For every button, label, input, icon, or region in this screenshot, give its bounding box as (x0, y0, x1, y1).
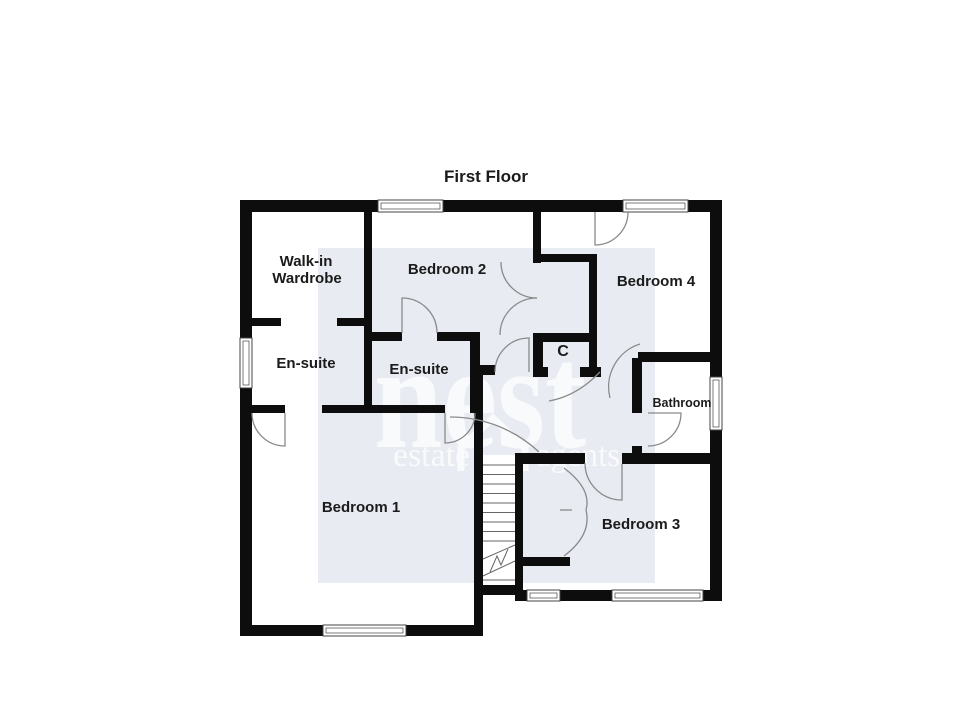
wall-wardrobe-bedroom2 (364, 212, 372, 413)
wall-bedroom3-closet-bottom (523, 557, 570, 566)
room-label-ensuite-left: En-suite (276, 355, 335, 372)
wall-cupboard-sill-east (580, 367, 601, 377)
floor-plan-page: nest estate agents (0, 0, 980, 712)
floor-plan-canvas: nest estate agents (0, 0, 980, 712)
room-label-ensuite-middle: En-suite (389, 361, 448, 378)
wall-exterior-left (240, 200, 252, 636)
room-label-cupboard: C (557, 343, 569, 360)
wall-ensuite-bottom-a (252, 405, 285, 413)
wall-ensuite-bottom-b (322, 405, 445, 413)
room-label-walk-in-wardrobe-line1: Walk-in (280, 253, 333, 270)
window (623, 200, 688, 212)
staircase (483, 455, 515, 587)
wall-cupboard-sill-west (533, 367, 548, 377)
wall-cupboard-east (589, 262, 597, 377)
wall-landing-stub (478, 365, 495, 375)
window (323, 625, 406, 636)
window (527, 590, 560, 601)
room-label-bedroom2: Bedroom 2 (408, 261, 486, 278)
room-label-walk-in-wardrobe-line2: Wardrobe (272, 270, 341, 287)
wall-wardrobe-ensuite-right-stub (337, 318, 364, 326)
wall-stair-east (515, 455, 523, 601)
room-label-bedroom1: Bedroom 1 (322, 499, 400, 516)
wall-closet-strip-bottom (533, 254, 597, 262)
wall-wardrobe-ensuite-left-stub (252, 318, 281, 326)
window (612, 590, 703, 601)
wall-stair-west (474, 366, 483, 636)
room-label-bedroom3: Bedroom 3 (602, 516, 680, 533)
wall-bedroom3-top-east (622, 453, 710, 464)
window (710, 377, 722, 430)
wall-bathroom-top (638, 352, 710, 362)
room-label-bedroom4: Bedroom 4 (617, 273, 696, 290)
window (378, 200, 443, 212)
wall-ensuite-mid-top-left (364, 332, 402, 341)
window (240, 338, 252, 388)
plan-title: First Floor (444, 167, 528, 186)
wall-bedroom3-top-west (515, 453, 585, 464)
wall-bathroom-west-upper (632, 358, 642, 413)
room-label-bathroom: Bathroom (652, 396, 711, 410)
